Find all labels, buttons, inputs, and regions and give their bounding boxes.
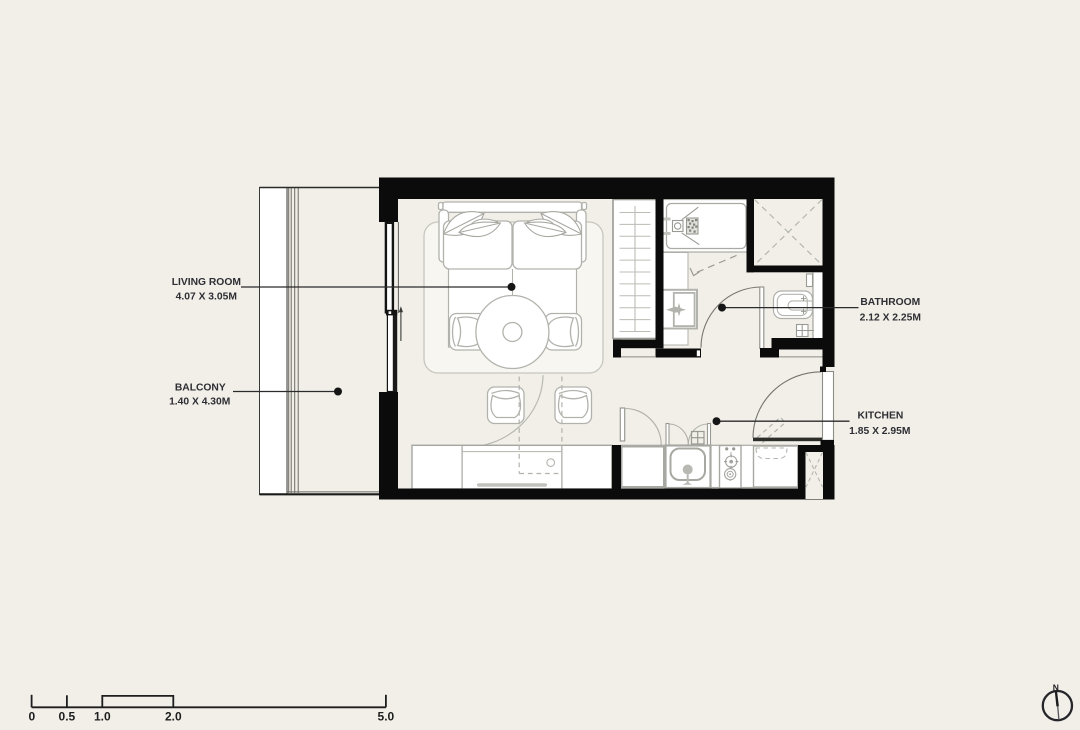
svg-text:LIVING ROOM: LIVING ROOM <box>172 277 241 288</box>
svg-text:1.85 X 2.95M: 1.85 X 2.95M <box>849 426 910 437</box>
svg-text:KITCHEN: KITCHEN <box>858 411 904 422</box>
svg-text:BATHROOM: BATHROOM <box>860 297 920 308</box>
svg-text:BALCONY: BALCONY <box>175 382 226 393</box>
svg-text:0.5: 0.5 <box>59 710 76 724</box>
svg-text:2.12 X 2.25M: 2.12 X 2.25M <box>860 313 921 324</box>
svg-text:5.0: 5.0 <box>378 710 395 724</box>
svg-text:2.0: 2.0 <box>165 710 182 724</box>
svg-text:4.07 X 3.05M: 4.07 X 3.05M <box>176 291 237 302</box>
svg-text:0: 0 <box>28 710 35 724</box>
svg-text:N: N <box>1053 682 1059 692</box>
svg-text:1.40 X 4.30M: 1.40 X 4.30M <box>169 397 230 408</box>
svg-text:1.0: 1.0 <box>94 710 111 724</box>
